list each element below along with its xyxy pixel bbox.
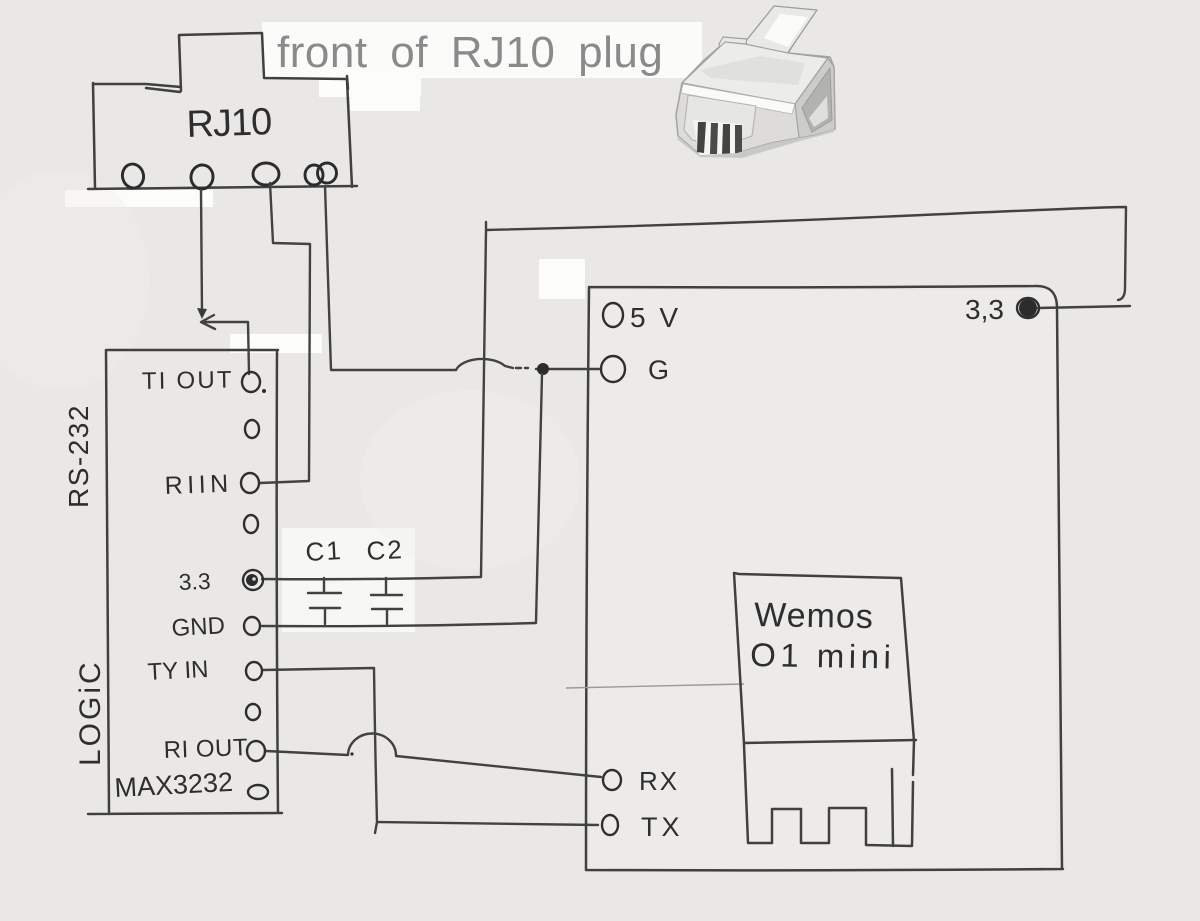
svg-text:MAX3232: MAX3232 bbox=[114, 767, 234, 803]
svg-text:Wemos: Wemos bbox=[754, 596, 874, 636]
svg-text:TX: TX bbox=[641, 812, 684, 842]
svg-text:RJ10: RJ10 bbox=[186, 101, 272, 146]
svg-text:C2: C2 bbox=[366, 534, 405, 566]
svg-text:G: G bbox=[648, 355, 669, 385]
svg-text:TI OUT: TI OUT bbox=[142, 366, 234, 395]
svg-text:TY IN: TY IN bbox=[147, 656, 209, 686]
svg-text:C1: C1 bbox=[305, 535, 344, 567]
svg-text:GND: GND bbox=[171, 612, 226, 642]
svg-text:5 V: 5 V bbox=[630, 302, 681, 333]
svg-text:LOGiC: LOGiC bbox=[74, 659, 107, 766]
svg-text:RS-232: RS-232 bbox=[63, 404, 94, 508]
svg-text:RX: RX bbox=[639, 766, 679, 796]
svg-text:front of RJ10 plug: front of RJ10 plug bbox=[277, 28, 663, 77]
svg-text:RI OUT: RI OUT bbox=[163, 734, 248, 764]
svg-text:O1 mini: O1 mini bbox=[750, 636, 896, 676]
svg-text:3.3: 3.3 bbox=[178, 568, 211, 595]
svg-text:RIIN: RIIN bbox=[164, 470, 233, 500]
svg-text:3,3: 3,3 bbox=[965, 294, 1004, 325]
